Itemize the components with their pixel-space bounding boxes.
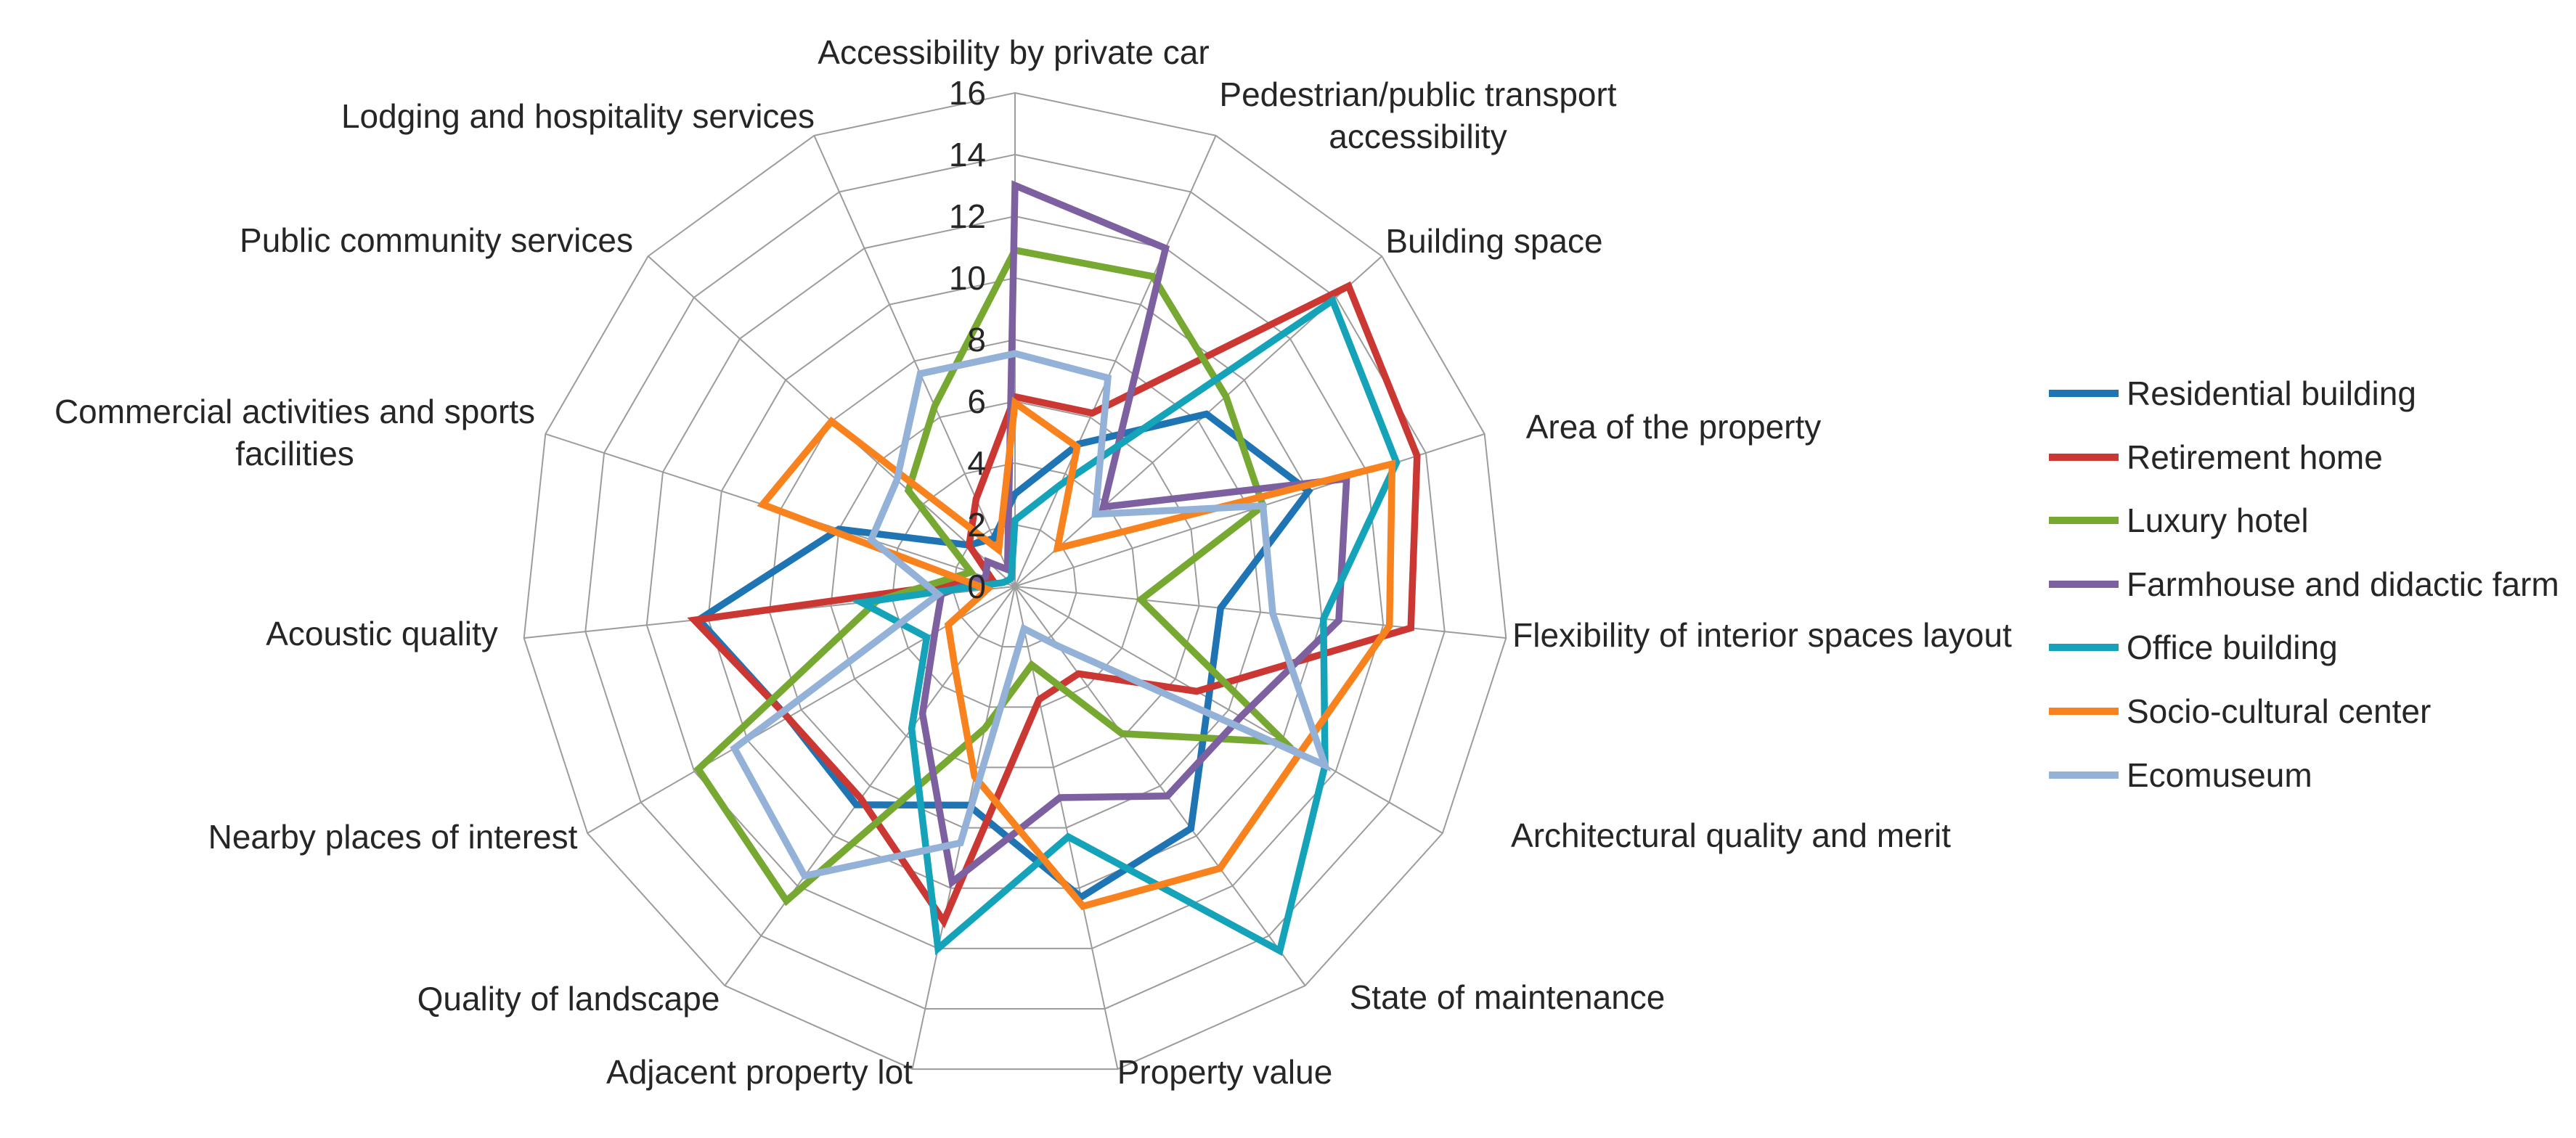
- svg-text:0: 0: [967, 568, 986, 605]
- svg-text:Architectural quality and meri: Architectural quality and merit: [1511, 816, 1951, 854]
- svg-text:2: 2: [967, 506, 986, 544]
- svg-text:Residential building: Residential building: [2127, 374, 2416, 412]
- svg-text:Pedestrian/public transport: Pedestrian/public transport: [1219, 75, 1616, 113]
- svg-text:Public community services: Public community services: [240, 221, 633, 259]
- svg-text:Property value: Property value: [1117, 1053, 1333, 1091]
- svg-text:16: 16: [949, 74, 986, 112]
- svg-text:Farmhouse and didactic farm: Farmhouse and didactic farm: [2127, 565, 2559, 603]
- svg-text:14: 14: [949, 136, 986, 173]
- svg-text:Luxury hotel: Luxury hotel: [2127, 502, 2309, 539]
- svg-text:Area of the property: Area of the property: [1526, 408, 1822, 446]
- svg-text:Accessibility by private car: Accessibility by private car: [818, 33, 1209, 71]
- svg-text:Adjacent property lot: Adjacent property lot: [606, 1053, 913, 1091]
- svg-text:6: 6: [967, 382, 986, 420]
- svg-text:Ecomuseum: Ecomuseum: [2127, 756, 2312, 794]
- svg-text:Lodging and hospitality servic: Lodging and hospitality services: [341, 97, 815, 135]
- svg-text:Retirement home: Retirement home: [2127, 438, 2383, 476]
- svg-text:Building space: Building space: [1385, 222, 1602, 260]
- svg-text:4: 4: [967, 444, 986, 482]
- svg-text:Office building: Office building: [2127, 629, 2338, 666]
- svg-text:10: 10: [949, 259, 986, 297]
- svg-text:Acoustic quality: Acoustic quality: [266, 615, 498, 652]
- svg-text:State of maintenance: State of maintenance: [1350, 978, 1666, 1016]
- svg-text:Commercial activities and spor: Commercial activities and sports: [54, 393, 535, 430]
- svg-text:Flexibility of interior spaces: Flexibility of interior spaces layout: [1512, 616, 2012, 654]
- svg-text:8: 8: [967, 321, 986, 359]
- svg-text:facilities: facilities: [235, 435, 354, 472]
- svg-text:Quality of landscape: Quality of landscape: [417, 980, 720, 1018]
- svg-text:Nearby places of interest: Nearby places of interest: [208, 818, 578, 856]
- svg-text:accessibility: accessibility: [1329, 118, 1507, 155]
- svg-text:Socio-cultural center: Socio-cultural center: [2127, 692, 2431, 730]
- svg-text:12: 12: [949, 197, 986, 235]
